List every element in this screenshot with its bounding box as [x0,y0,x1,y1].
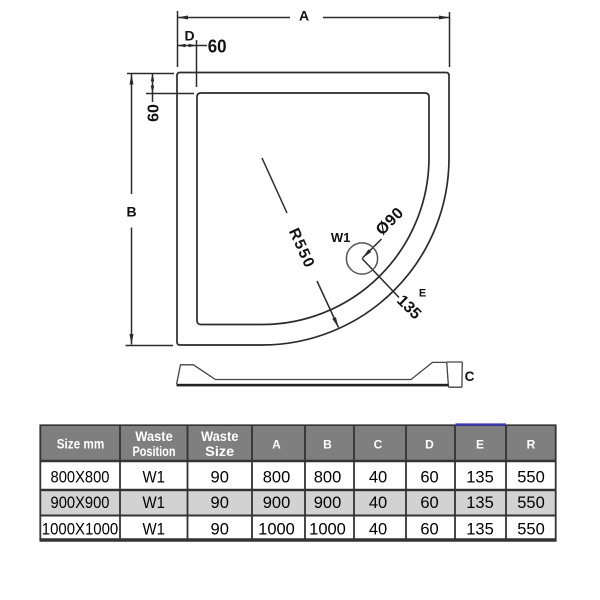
svg-text:1000: 1000 [258,521,295,539]
svg-text:900: 900 [314,494,342,512]
svg-text:C: C [465,369,475,384]
svg-text:40: 40 [369,521,387,539]
svg-text:60: 60 [420,469,438,487]
svg-text:Size mm: Size mm [57,437,105,452]
svg-text:800X800: 800X800 [51,469,110,487]
svg-text:90: 90 [211,469,229,487]
svg-text:W1: W1 [331,230,351,245]
svg-text:135: 135 [466,521,494,539]
svg-text:90: 90 [211,494,229,512]
svg-text:R550: R550 [285,226,318,272]
svg-text:800: 800 [263,469,291,487]
svg-text:Size: Size [205,444,235,459]
svg-text:40: 40 [369,494,387,512]
svg-text:Waste: Waste [201,429,239,444]
svg-text:Waste: Waste [135,429,173,444]
svg-text:R: R [527,438,536,452]
svg-text:C: C [374,438,383,452]
svg-text:550: 550 [517,521,545,539]
svg-text:90: 90 [211,521,229,539]
svg-text:E: E [476,438,484,452]
svg-text:900X900: 900X900 [51,494,110,512]
svg-text:W1: W1 [142,521,165,539]
svg-text:60: 60 [420,521,438,539]
svg-text:60: 60 [208,36,227,56]
svg-text:60: 60 [420,494,438,512]
svg-text:Position: Position [133,444,176,459]
svg-text:W1: W1 [142,494,165,512]
svg-text:1000: 1000 [309,521,346,539]
svg-text:D: D [184,28,194,44]
svg-text:A: A [299,7,309,23]
svg-text:800: 800 [314,469,342,487]
svg-text:B: B [126,204,136,220]
svg-text:A: A [272,438,281,452]
svg-text:60: 60 [145,104,162,122]
svg-text:1000X1000: 1000X1000 [42,521,119,539]
svg-text:900: 900 [263,494,291,512]
svg-text:Ø90: Ø90 [373,204,407,238]
svg-text:550: 550 [517,494,545,512]
svg-text:550: 550 [517,469,545,487]
svg-text:135: 135 [466,494,494,512]
svg-text:E: E [419,288,426,300]
svg-text:B: B [323,438,332,452]
svg-text:40: 40 [369,469,387,487]
svg-text:W1: W1 [142,469,165,487]
svg-text:D: D [425,438,434,452]
svg-text:135: 135 [466,469,494,487]
